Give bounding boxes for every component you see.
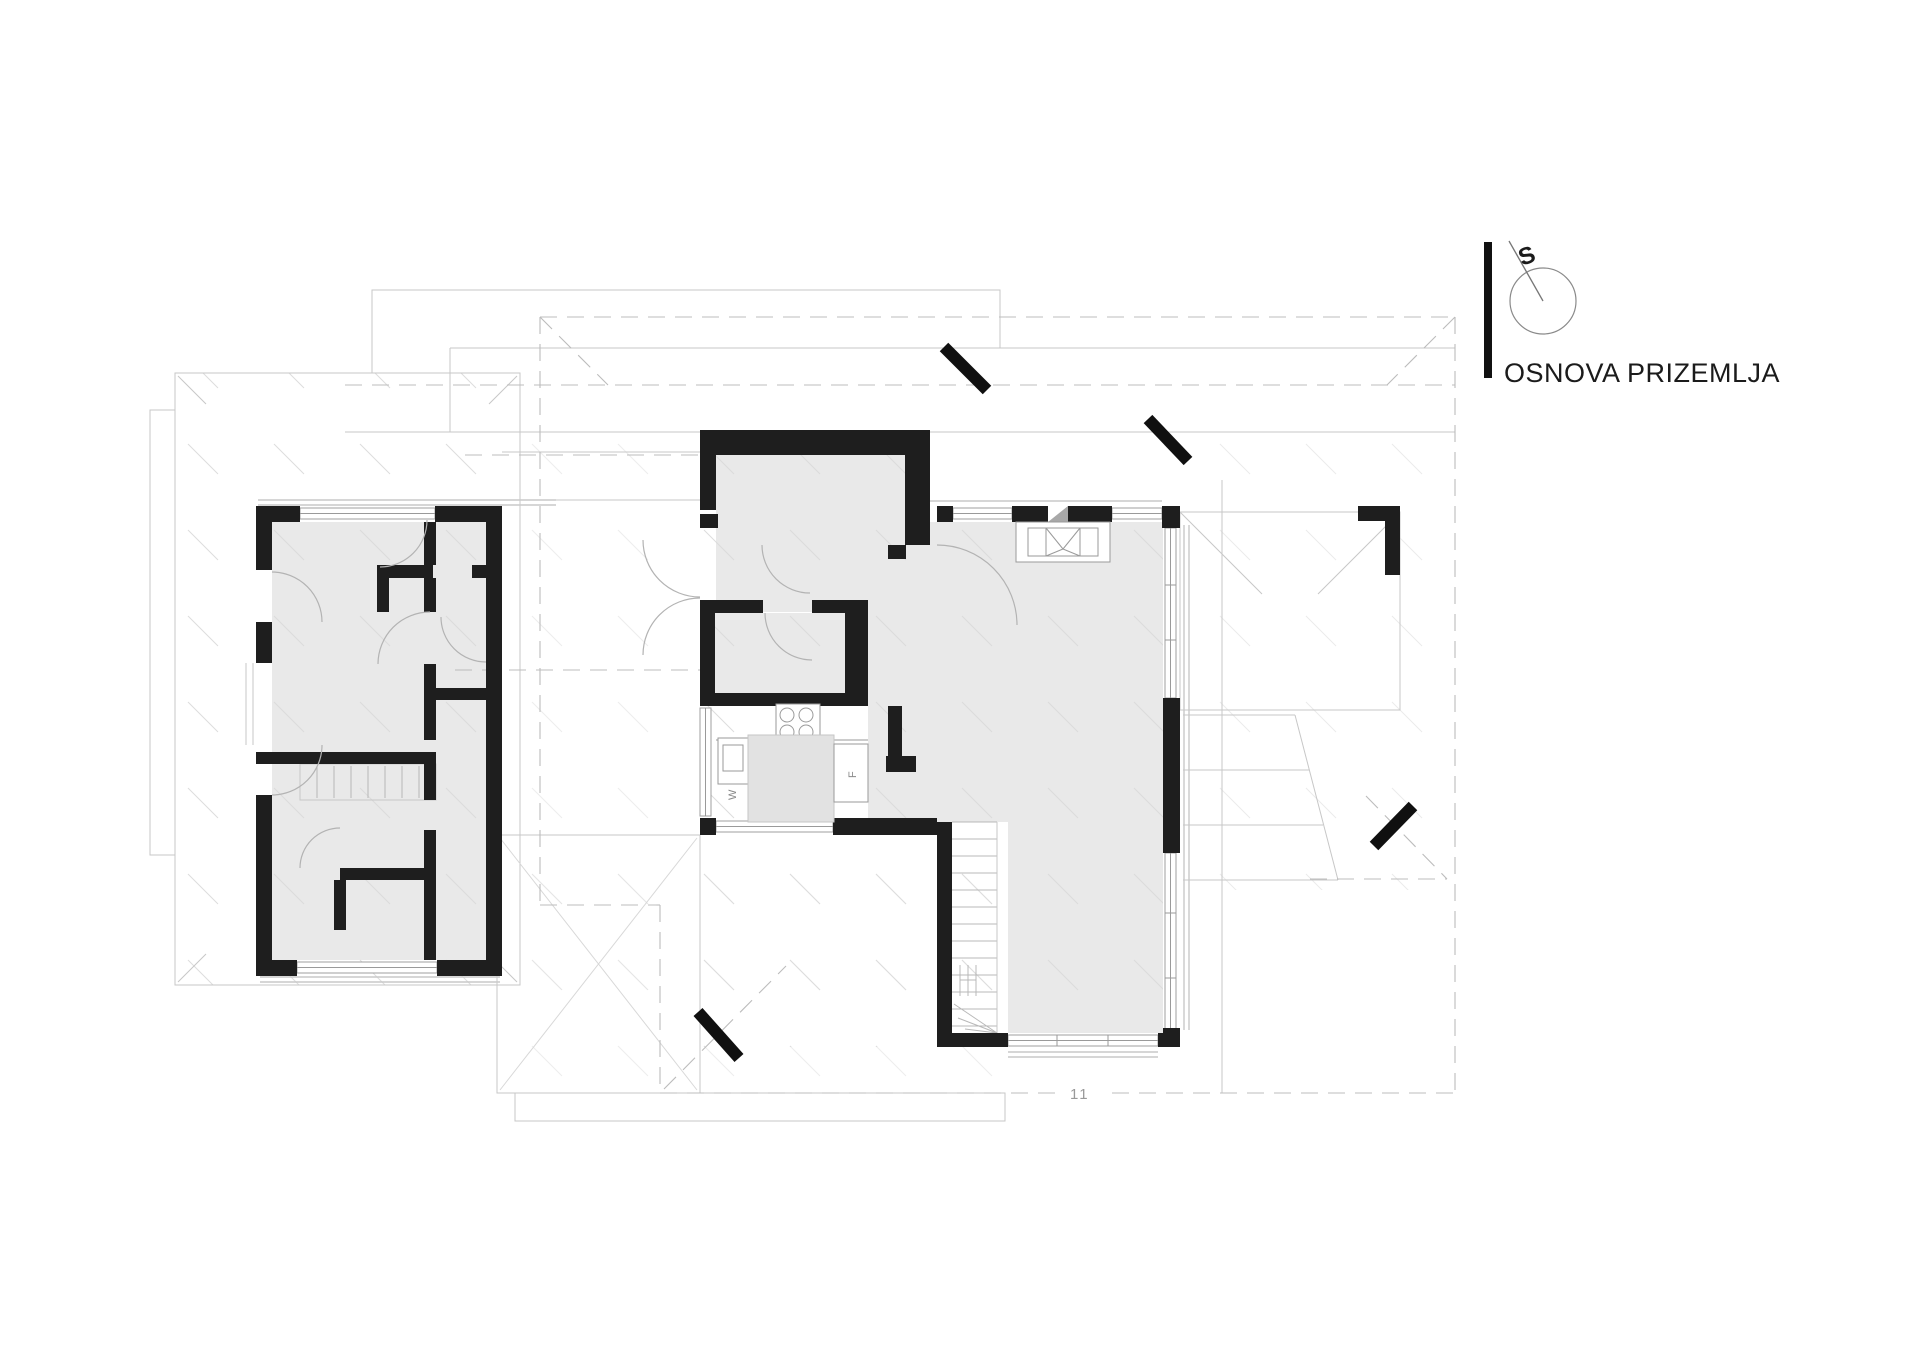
drawing-title: OSNOVA PRIZEMLJA — [1504, 358, 1780, 388]
section-cut-marker — [944, 347, 987, 390]
floor-plan-drawing: W F S — [0, 0, 1920, 1358]
floor-plan-page: W F S — [0, 0, 1920, 1358]
title-block: S OSNOVA PRIZEMLJA — [1484, 241, 1780, 388]
north-label: S — [1515, 241, 1539, 272]
title-bar — [1484, 242, 1492, 378]
section-line-label: 11 — [1070, 1086, 1090, 1103]
north-arrow-circle-icon: S — [1509, 241, 1576, 334]
fridge-label: F — [847, 771, 859, 778]
kitchen-island — [748, 735, 834, 822]
washer-label: W — [727, 789, 739, 800]
